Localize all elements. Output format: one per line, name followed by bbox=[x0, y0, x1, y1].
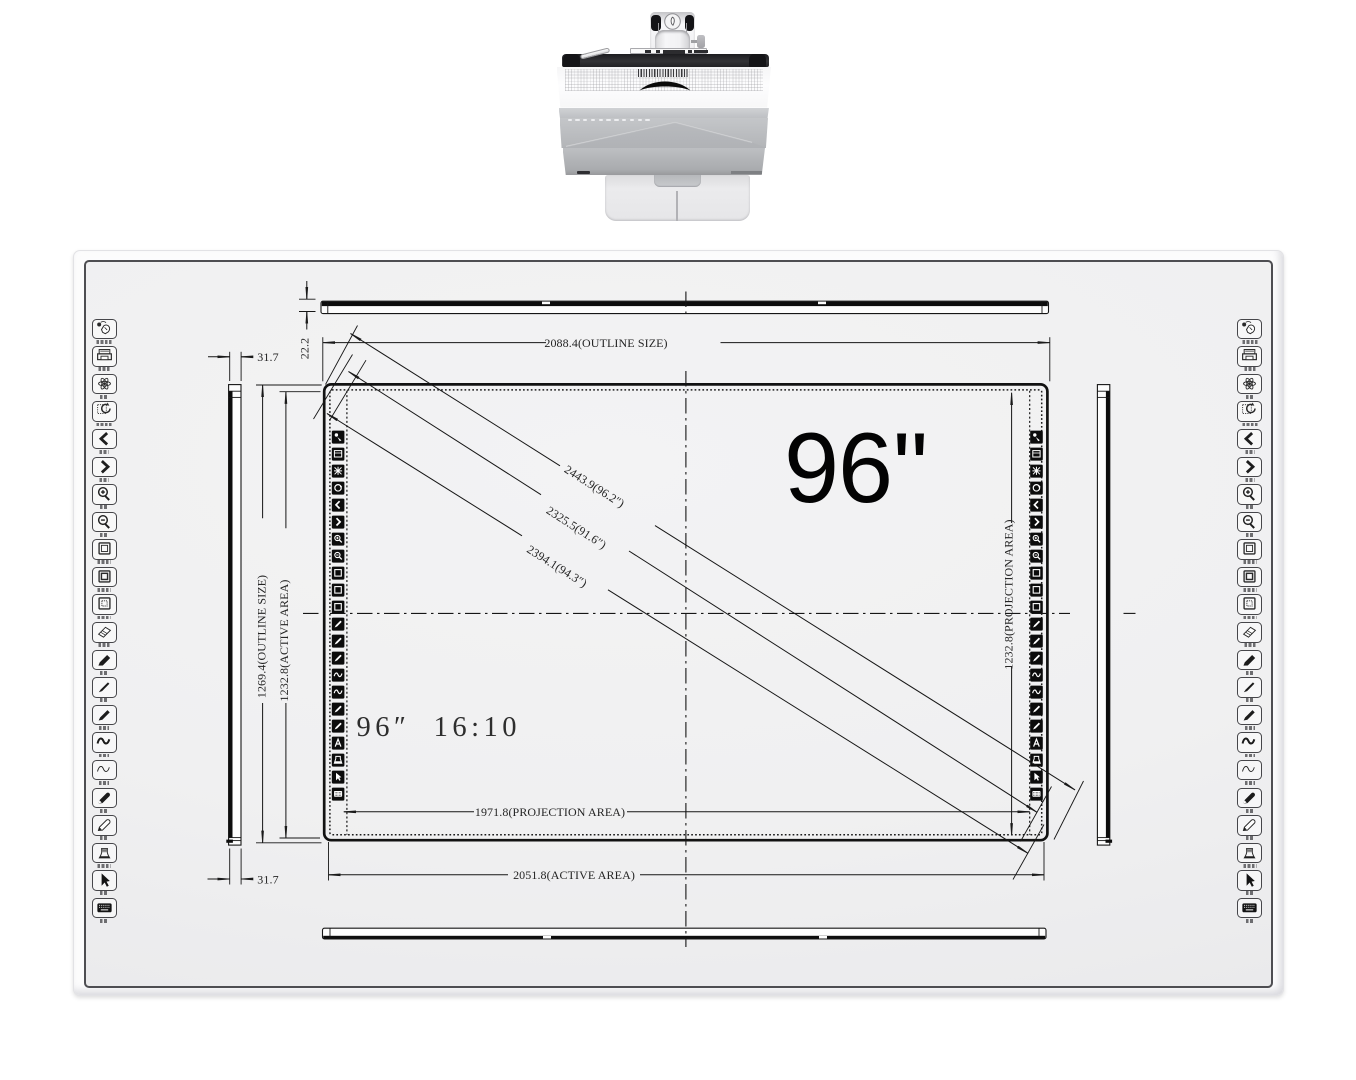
svg-text:2088.4(OUTLINE SIZE): 2088.4(OUTLINE SIZE) bbox=[544, 336, 667, 350]
svg-text:1232.8(ACTIVE AREA): 1232.8(ACTIVE AREA) bbox=[277, 580, 291, 702]
svg-text:1971.8(PROJECTION AREA): 1971.8(PROJECTION AREA) bbox=[475, 805, 625, 819]
svg-text:1269.4(OUTLINE SIZE): 1269.4(OUTLINE SIZE) bbox=[254, 575, 268, 698]
svg-text:2051.8(ACTIVE AREA): 2051.8(ACTIVE AREA) bbox=[513, 868, 635, 882]
svg-text:2394.1(94.3″): 2394.1(94.3″) bbox=[524, 542, 589, 590]
svg-text:2325.5(91.6″): 2325.5(91.6″) bbox=[544, 503, 609, 552]
svg-text:2443.9(96.2″): 2443.9(96.2″) bbox=[562, 462, 627, 510]
svg-text:31.7: 31.7 bbox=[257, 350, 278, 364]
svg-text:1232.8(PROJECTION AREA): 1232.8(PROJECTION AREA) bbox=[1002, 519, 1016, 669]
svg-text:31.7: 31.7 bbox=[257, 872, 278, 886]
svg-text:22.2: 22.2 bbox=[298, 338, 312, 359]
